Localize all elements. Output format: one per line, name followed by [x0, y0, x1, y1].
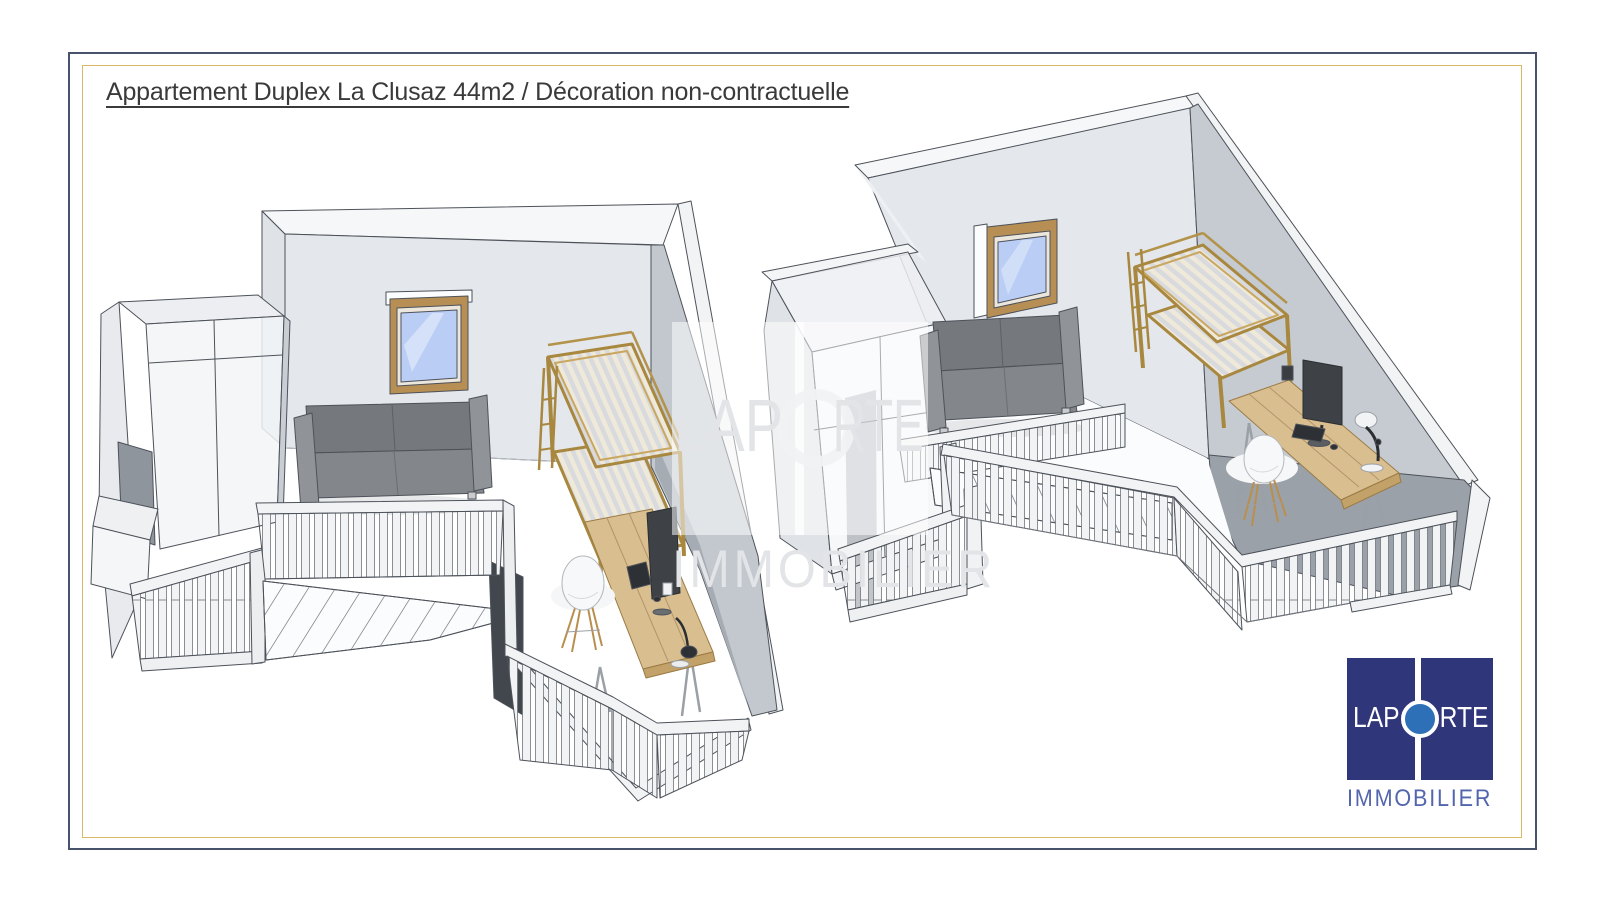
desk-lamp-right — [1355, 412, 1377, 428]
sofa-left — [294, 395, 492, 515]
page-title: Appartement Duplex La Clusaz 44m2 / Déco… — [106, 78, 849, 107]
laporte-logo-square: LAP RTE — [1347, 658, 1493, 780]
laporte-logo-text-lap: LAP — [1353, 704, 1400, 733]
laporte-logo-text-immobilier: IMMOBILIER — [1347, 787, 1478, 811]
flyer-page: { "page": { "title": "Appartement Duplex… — [0, 0, 1600, 900]
laporte-logo-text-rte: RTE — [1439, 704, 1488, 733]
staircase-left — [263, 561, 523, 715]
monitor-right — [1303, 360, 1342, 425]
duplex-3d-view-left — [91, 201, 783, 801]
duplex-3d-view-right — [762, 93, 1490, 630]
window-left — [386, 290, 472, 394]
railing-left-landing — [130, 548, 265, 671]
window-right — [974, 219, 1057, 318]
railing-left-lower — [505, 644, 751, 801]
laporte-logo: LAP RTE IMMOBILIER — [1347, 658, 1493, 811]
laporte-logo-circle-o-icon — [1401, 700, 1439, 738]
